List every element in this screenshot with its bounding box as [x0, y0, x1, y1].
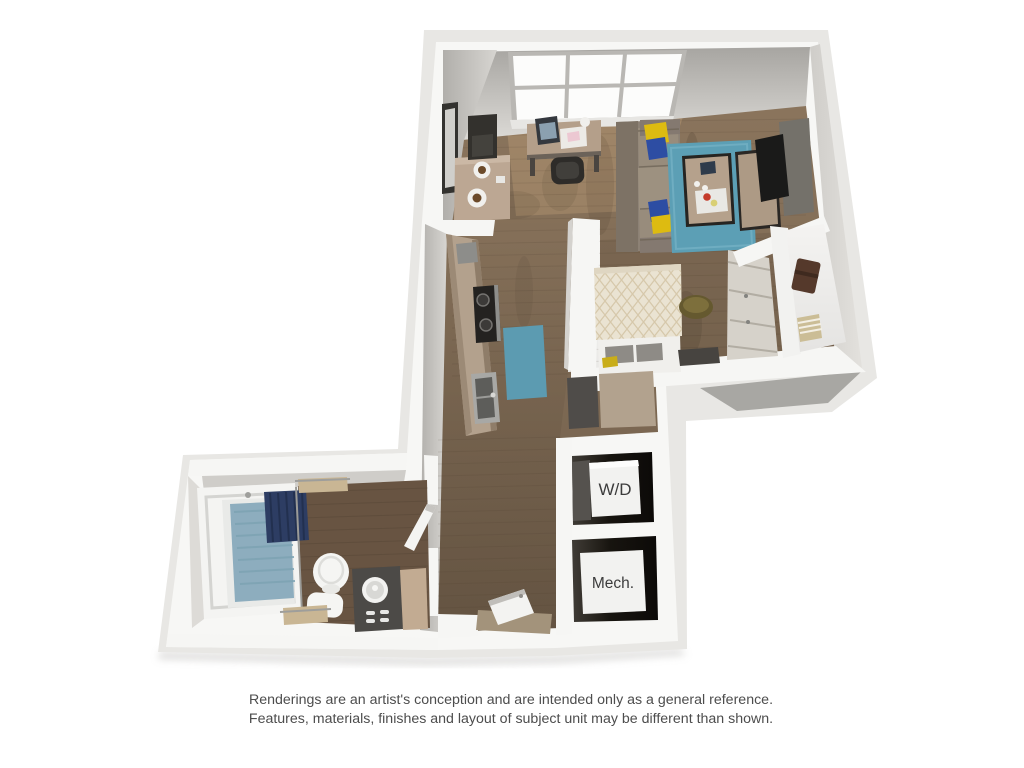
svg-text:Mech.: Mech.	[592, 575, 634, 592]
svg-text:Renderings are an artist's con: Renderings are an artist's conception an…	[249, 692, 773, 708]
svg-text:W/D: W/D	[598, 480, 631, 499]
svg-text:Features, materials, finishes: Features, materials, finishes and layout…	[249, 711, 773, 727]
